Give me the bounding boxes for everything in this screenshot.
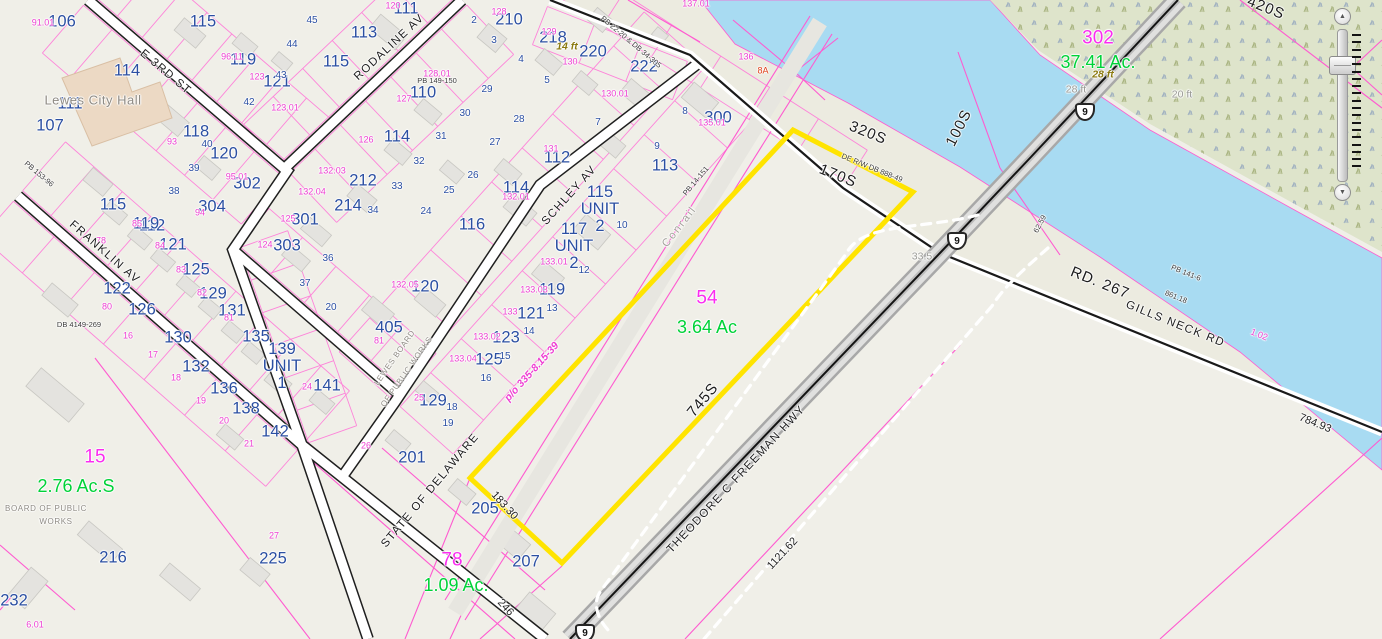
zoom-tick [1352, 144, 1361, 146]
map-label: 15 [499, 352, 510, 362]
map-label: 26 [467, 171, 478, 181]
map-label: 405 [375, 320, 403, 337]
map-label: 127 [396, 94, 411, 103]
map-label: 36 [322, 254, 333, 264]
map-label: 136 [210, 381, 238, 398]
map-label: 28 [513, 115, 524, 125]
map-label: 132.05 [391, 280, 419, 289]
zoom-tick [1352, 107, 1361, 109]
map-label: 124 [257, 240, 272, 249]
map-label: 303 [273, 238, 301, 255]
map-label: 81 [224, 313, 234, 322]
map-label: 54 [696, 288, 717, 307]
map-label: 302 [1082, 28, 1114, 47]
map-label: 4 [518, 55, 524, 65]
map-label: 123 [249, 72, 264, 81]
map-label: 113 [652, 158, 678, 175]
map-label: 14 ft [556, 42, 578, 53]
map-label: 120 [210, 146, 238, 163]
map-label: 121 [517, 306, 545, 323]
zoom-out-button[interactable]: ▼ [1334, 184, 1351, 201]
map-label: WORKS [39, 518, 72, 526]
map-label: 10 [616, 221, 627, 231]
zoom-tick [1352, 129, 1361, 131]
map-label: 95.01 [226, 172, 249, 181]
map-label: 2 [471, 16, 477, 26]
zoom-tick [1352, 92, 1361, 94]
map-label: 132 [182, 359, 210, 376]
map-label: 93 [167, 137, 177, 146]
map-label: 201 [398, 450, 426, 467]
map-label: 136 [738, 52, 753, 61]
map-label: 116 [459, 217, 485, 234]
map-label: 30 [459, 109, 470, 119]
map-label: 8A [757, 66, 768, 75]
map-label: 83 [176, 265, 186, 274]
map-label: 80 [102, 302, 112, 311]
map-label: 122 [103, 281, 131, 298]
map-label: 125 [280, 214, 295, 223]
map-label: 45 [306, 16, 317, 26]
zoom-slider[interactable]: ▲ ▼ [1318, 4, 1378, 214]
map-label: 34 [367, 206, 378, 216]
map-label: 126 [128, 302, 156, 319]
map-label: 110 [410, 85, 436, 102]
zoom-tick [1352, 41, 1361, 43]
map-label: 133.03 [520, 285, 548, 294]
map-label: 114 [114, 63, 140, 80]
zoom-tick [1352, 71, 1361, 73]
map-label: 220 [579, 44, 607, 61]
map-label: 137.01 [682, 0, 710, 9]
route-9-shield: 9 [575, 624, 595, 639]
map-label: 142 [261, 424, 289, 441]
map-label: 131 [543, 144, 558, 153]
zoom-tick [1352, 34, 1361, 36]
zoom-slider-track[interactable] [1337, 29, 1348, 182]
map-label: 20 [219, 416, 229, 425]
map-label: 6.01 [26, 620, 44, 629]
map-label: 130 [562, 57, 577, 66]
map-label: 130 [164, 330, 192, 347]
zoom-tick [1352, 78, 1361, 80]
map-label: 20 [325, 303, 336, 313]
map-label: 129 [541, 27, 556, 36]
map-label: 12 [578, 266, 589, 276]
zoom-tick [1352, 136, 1361, 138]
map-label: 40 [201, 140, 212, 150]
map-label: 15 [84, 447, 105, 466]
map-label: 37 [299, 279, 310, 289]
map-label: 225 [259, 551, 287, 568]
map-label: PB 149-150 [417, 77, 457, 85]
map-label: Lewes City Hall [44, 93, 141, 106]
map-label: 28 ft [1092, 70, 1114, 81]
map-label: 94 [195, 208, 205, 217]
map-label: 115 [100, 197, 126, 214]
map-label: 43 [275, 71, 286, 81]
map-label: 14 [523, 327, 534, 337]
map-label: 81 [374, 336, 384, 345]
map-label: DB 4149-269 [57, 321, 101, 329]
map-label: 33.5 [912, 252, 932, 263]
map-label: 133.04 [449, 354, 477, 363]
map-label: 33 [391, 182, 402, 192]
map-label: 133.02 [473, 332, 501, 341]
map-label: 214 [334, 198, 362, 215]
map-label: 132.04 [298, 187, 326, 196]
zoom-tick [1352, 114, 1361, 116]
map-label: 28 ft [1066, 85, 1086, 96]
map-label: 132.01 [502, 192, 530, 201]
map-label: 31 [435, 132, 446, 142]
map-label: 24 [302, 382, 312, 391]
map-label: 1.09 Ac. [423, 576, 488, 594]
map-label: 115 [323, 54, 349, 71]
map-label: 115 [190, 14, 216, 31]
map-label: 25 [443, 186, 454, 196]
map-label: 135.01 [698, 118, 726, 127]
map-label: 17 [148, 350, 158, 359]
map-label: 82 [197, 288, 207, 297]
map-label: 32 [413, 157, 424, 167]
map-label: 216 [99, 550, 127, 567]
map-label: 3 [491, 36, 497, 46]
map-label: 7 [595, 118, 601, 128]
zoom-tick [1352, 85, 1361, 87]
map-label: 207 [512, 554, 540, 571]
map-label: 138 [232, 401, 260, 418]
zoom-tick [1352, 165, 1361, 167]
zoom-tick [1352, 100, 1361, 102]
map-label: 16 [123, 331, 133, 340]
map-label: 44 [286, 40, 297, 50]
map-label: 26 [361, 441, 371, 450]
map-label: 3.64 Ac [677, 318, 737, 336]
zoom-tick [1352, 49, 1361, 51]
map-label: 25 [414, 393, 424, 402]
map-label: 212 [349, 173, 377, 190]
map-label: 5 [544, 76, 550, 86]
map-label: 130.01 [601, 89, 629, 98]
map-label: 18 [171, 373, 181, 382]
map-label: 18 [446, 403, 457, 413]
map-label: 38 [168, 187, 179, 197]
map-label: 13 [546, 304, 557, 314]
map-label: 39 [188, 164, 199, 174]
map-label: 120 [385, 1, 400, 10]
map-label: 16 [480, 374, 491, 384]
map-label: 84 [155, 241, 165, 250]
map-label: 19 [442, 419, 453, 429]
zoom-tick [1352, 151, 1361, 153]
map-label: 139 UNIT 1 [263, 341, 302, 391]
map-label: 19 [196, 396, 206, 405]
map-label: 107 [36, 118, 64, 135]
zoom-tick [1352, 63, 1361, 65]
map-label: 91.01 [32, 18, 55, 27]
zoom-tick [1352, 158, 1361, 160]
map-label: 133.01 [540, 257, 568, 266]
zoom-in-button[interactable]: ▲ [1334, 8, 1351, 25]
map-label: 20 ft [1172, 90, 1192, 101]
map-label: 232 [0, 593, 28, 610]
map-label: 78 [441, 550, 462, 569]
map-label: 133 [502, 307, 517, 316]
map-label: 113 [351, 25, 377, 42]
map-label: 29 [481, 85, 492, 95]
map-label: 24 [420, 207, 431, 217]
map-label: 141 [313, 378, 341, 395]
map-label: 114 [384, 129, 410, 146]
map-label: 42 [243, 98, 254, 108]
map-label: 9 [654, 142, 660, 152]
map-label: 128 [491, 7, 506, 16]
zoom-tick [1352, 122, 1361, 124]
map-label: 2.76 Ac.S [37, 477, 114, 495]
map-label: 27 [269, 531, 279, 540]
map-label: 123.01 [271, 103, 299, 112]
map-label: 27 [489, 138, 500, 148]
map-label: 126 [358, 135, 373, 144]
map-label: 8 [682, 107, 688, 117]
map-canvas[interactable]: 1061151111131191211151141111071181203023… [0, 0, 1382, 639]
map-label: 132.03 [318, 166, 346, 175]
map-label: 118 [183, 124, 209, 141]
map-label: 96.11 [221, 52, 243, 61]
map-label: 125 [182, 262, 210, 279]
zoom-tick [1352, 56, 1361, 58]
map-label: 85 [132, 219, 142, 228]
map-label: 21 [244, 439, 254, 448]
map-label: BOARD OF PUBLIC [5, 505, 87, 513]
